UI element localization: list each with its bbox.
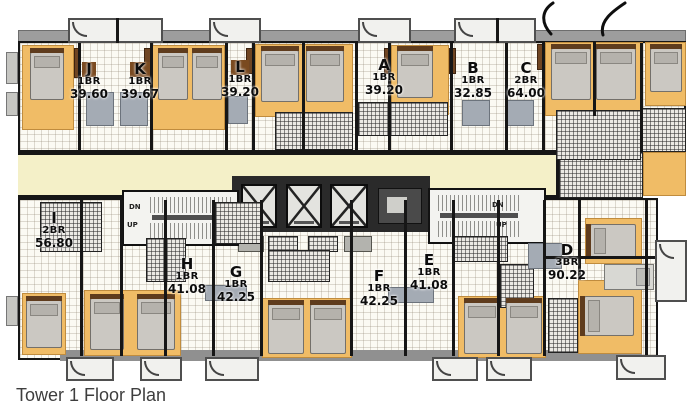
bathroom — [641, 108, 686, 152]
balcony — [140, 357, 182, 381]
unit-letter: F — [356, 268, 402, 284]
bed-icon — [551, 48, 591, 100]
bedroom — [643, 152, 686, 196]
bed-icon — [590, 224, 636, 258]
unit-letter: L — [231, 60, 249, 75]
unit-letter: K — [130, 62, 150, 77]
unit-letter: H — [164, 256, 210, 272]
wall — [452, 200, 455, 356]
unit-label-K: K 1BR 39.67 — [117, 60, 163, 101]
balcony — [432, 357, 478, 381]
unit-area: 64.00 — [503, 87, 549, 100]
stair-treads — [438, 195, 520, 211]
wall — [260, 200, 263, 356]
balcony — [486, 357, 532, 381]
unit-area: 32.85 — [450, 87, 496, 100]
unit-area: 39.20 — [217, 86, 263, 99]
unit-label-G: G 1BR 42.25 — [213, 264, 259, 304]
ledge — [6, 52, 18, 84]
unit-label-A: A 1BR 39.20 — [361, 57, 407, 97]
bathroom — [215, 202, 263, 244]
wall — [302, 43, 305, 152]
unit-area: 39.67 — [117, 88, 163, 101]
unit-letter: J — [82, 62, 96, 77]
unit-area: 56.80 — [31, 237, 77, 250]
wall — [497, 200, 500, 356]
bathroom — [548, 298, 578, 353]
table-icon — [462, 100, 490, 126]
bed-icon — [26, 300, 62, 348]
unit-letter: E — [406, 252, 452, 268]
bed-icon — [30, 52, 64, 100]
bed-icon — [464, 302, 500, 354]
bed-icon — [596, 48, 636, 100]
unit-label-J: J 1BR 39.60 — [66, 60, 112, 101]
balcony — [68, 18, 163, 43]
annotation-strokes — [533, 1, 633, 37]
unit-letter: G — [213, 264, 259, 280]
stair-dn-label: DN — [129, 204, 141, 211]
unit-area: 42.25 — [213, 291, 259, 304]
lobby-fixture — [344, 236, 372, 252]
unit-label-D: D 3BR 90.22 — [544, 242, 590, 282]
unit-label-I: I 2BR 56.80 — [31, 210, 77, 250]
unit-label-H: H 1BR 41.08 — [164, 256, 210, 296]
caption: Tower 1 Floor Plan — [16, 385, 166, 406]
wall — [120, 200, 123, 356]
wall — [355, 43, 358, 152]
unit-letter: D — [544, 242, 590, 258]
bed-icon — [268, 304, 304, 354]
bathroom — [556, 110, 641, 160]
table-icon — [506, 100, 534, 126]
unit-label-F: F 1BR 42.25 — [356, 268, 402, 308]
unit-area: 39.60 — [66, 88, 112, 101]
table-icon — [228, 96, 248, 124]
elevator-shaft — [330, 184, 368, 228]
bathroom — [268, 250, 330, 282]
bed-icon — [306, 50, 344, 102]
wall — [80, 200, 83, 356]
unit-letter: I — [31, 210, 77, 226]
wall — [350, 200, 353, 356]
balcony — [616, 355, 666, 380]
bed-icon — [137, 298, 175, 350]
balcony — [66, 357, 114, 381]
unit-area: 42.25 — [356, 295, 402, 308]
balcony — [209, 18, 261, 43]
unit-label-B: B 1BR 32.85 — [450, 60, 496, 100]
unit-label-C: C 2BR 64.00 — [503, 60, 549, 100]
bed-icon — [650, 48, 682, 92]
ledge — [6, 296, 18, 326]
balcony — [655, 240, 687, 302]
elevator-shaft — [286, 184, 322, 228]
unit-area: 41.08 — [406, 279, 452, 292]
unit-label-L: L 1BR 39.20 — [217, 58, 263, 99]
unit-letter: A — [361, 57, 407, 73]
ledge — [6, 92, 18, 116]
wall — [593, 42, 596, 116]
unit-letter: B — [450, 60, 496, 76]
wall — [640, 43, 643, 152]
bed-icon — [261, 50, 299, 102]
bathroom — [358, 102, 448, 136]
stair-up-label: UP — [127, 222, 138, 229]
unit-area: 39.20 — [361, 84, 407, 97]
stair-treads — [438, 221, 520, 237]
balcony — [205, 357, 259, 381]
tower1-floor-plan: DN UP DN UP — [0, 0, 697, 416]
bed-icon — [506, 302, 542, 354]
bed-icon — [310, 304, 346, 354]
bed-icon — [90, 298, 124, 350]
unit-letter: C — [503, 60, 549, 76]
service-room — [378, 188, 422, 224]
bathroom — [275, 112, 353, 150]
unit-area: 41.08 — [164, 283, 210, 296]
unit-area: 90.22 — [544, 269, 590, 282]
balcony — [454, 18, 536, 43]
unit-label-E: E 1BR 41.08 — [406, 252, 452, 292]
bed-icon — [584, 296, 634, 336]
balcony — [358, 18, 411, 43]
wall — [645, 200, 648, 356]
